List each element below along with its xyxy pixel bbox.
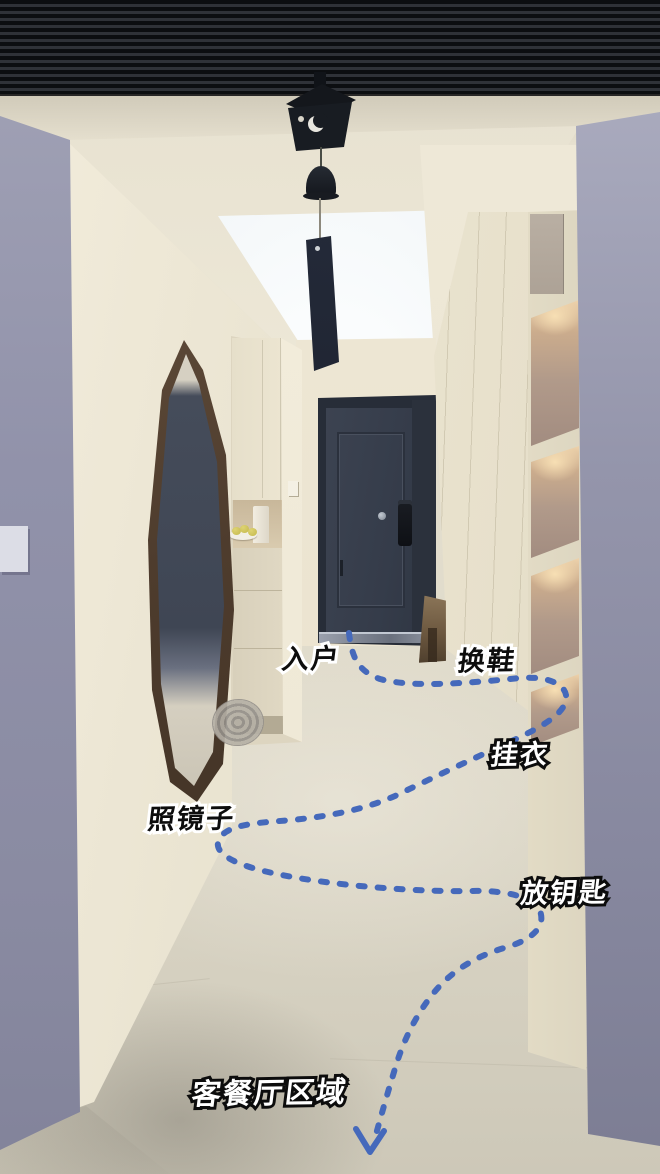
label-place-keys: 放钥匙 放钥匙	[519, 879, 610, 908]
stool-leg-gap	[428, 628, 437, 662]
alcove-upper-cabinet	[232, 338, 281, 500]
label-change-shoes: 换鞋 换鞋	[456, 647, 517, 675]
fruit	[248, 528, 257, 536]
shelf-upper-cabinet	[530, 214, 564, 294]
lantern-round-cutout	[298, 116, 304, 122]
canister	[253, 506, 269, 543]
crescent-moon-mask	[313, 113, 328, 128]
wind-chime-cord	[319, 198, 321, 242]
label-entry-text: 入户	[280, 643, 342, 674]
label-hang-clothes: 挂衣 挂衣	[489, 741, 550, 769]
label-look-in-mirror-text: 照镜子	[146, 803, 237, 835]
alcove-drawers	[233, 548, 283, 716]
light-switch	[0, 526, 28, 572]
slatted-ceiling	[0, 0, 660, 94]
smart-lock	[398, 500, 412, 546]
cabinet-seam	[262, 340, 263, 498]
label-entry: 入户 入户	[280, 645, 341, 673]
door-knob	[378, 512, 386, 520]
label-place-keys-text: 放钥匙	[519, 877, 610, 909]
entry-door-panel	[337, 432, 405, 608]
entryway-route-photo: 入户 入户 换鞋 换鞋 挂衣 挂衣 照镜子 照镜子 放钥匙 放钥匙 客餐厅区域 …	[0, 0, 660, 1174]
drawer-line	[234, 590, 282, 591]
drawer-line	[234, 648, 282, 649]
wall-switch-small	[288, 481, 298, 496]
label-living-dining-area: 客餐厅区域 客餐厅区域	[190, 1079, 349, 1111]
label-living-dining-area-text: 客餐厅区域	[190, 1077, 349, 1112]
shelf-niche	[531, 446, 579, 558]
shelf-niche	[531, 558, 579, 674]
label-hang-clothes-text: 挂衣	[489, 739, 551, 770]
wind-chime-bell-rim	[303, 192, 339, 200]
door-threshold	[319, 632, 437, 643]
door-handle-slot	[340, 560, 343, 576]
strip-hole	[315, 246, 320, 251]
shelf-niche	[531, 300, 579, 446]
label-change-shoes-text: 换鞋	[456, 645, 518, 676]
label-look-in-mirror: 照镜子 照镜子	[146, 805, 237, 834]
